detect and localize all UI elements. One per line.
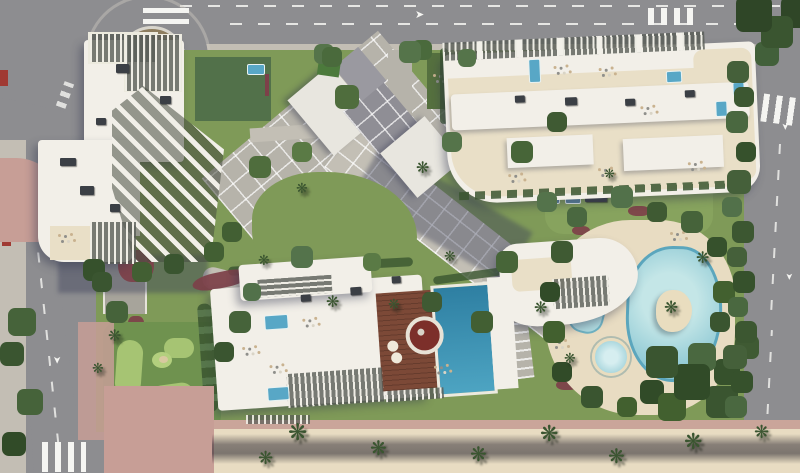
palm-tree: ❋ — [388, 298, 400, 312]
rooftop-unit — [110, 204, 120, 212]
rooftop-unit — [350, 287, 362, 296]
palm-tree: ❋ — [92, 362, 104, 376]
crosswalk — [760, 93, 800, 126]
terrace-furniture — [599, 68, 602, 71]
terrace-furniture — [58, 234, 61, 237]
palm-tree: ❋ — [258, 450, 273, 468]
flower-strip — [265, 74, 269, 96]
palm-tree: ❋ — [326, 294, 339, 310]
rooftop-unit — [60, 158, 76, 166]
palm-tree: ❋ — [534, 300, 547, 316]
sand-trap — [159, 356, 168, 363]
pink-sidewalk — [104, 386, 214, 473]
green-roof-box — [317, 57, 341, 78]
building-b-roof-slab — [623, 135, 724, 171]
plunge-pool — [267, 386, 290, 402]
building-b — [443, 41, 761, 204]
palm-tree: ❋ — [540, 424, 558, 446]
plunge-pool — [732, 82, 745, 97]
rooftop-unit — [565, 97, 577, 106]
palm-tree: ❋ — [664, 300, 678, 317]
sun-loungers — [670, 232, 673, 235]
rooftop-unit — [80, 186, 94, 195]
palm-tree: ❋ — [108, 328, 121, 344]
rooftop-unit — [160, 96, 171, 104]
wing-pergola — [552, 275, 610, 309]
crosswalk — [648, 8, 700, 25]
palm-tree: ❋ — [684, 432, 702, 454]
palm-tree: ❋ — [288, 422, 307, 445]
palm-tree: ❋ — [604, 168, 615, 181]
plunge-pool — [264, 314, 289, 331]
palm-tree: ❋ — [608, 446, 625, 466]
building-a-pergola — [124, 34, 182, 92]
palm-tree: ❋ — [470, 444, 487, 464]
rooftop-unit — [391, 276, 400, 284]
palm-tree: ❋ — [444, 250, 456, 264]
lane-arrow-icon: ➤ — [415, 9, 424, 20]
picnic-table — [433, 74, 436, 77]
rooftop-unit — [116, 64, 129, 73]
terrace-furniture — [553, 66, 556, 69]
crosswalk — [42, 442, 86, 472]
kiosk-roof — [0, 70, 8, 86]
building-c-fins — [286, 367, 384, 408]
plunge-pool — [666, 70, 683, 83]
rooftop-unit — [685, 90, 695, 97]
rooftop-unit — [301, 294, 311, 302]
terrace-furniture — [508, 174, 511, 177]
terrace-furniture — [640, 106, 643, 109]
lane-line — [180, 5, 800, 7]
palm-tree: ❋ — [696, 250, 709, 266]
yield-marks — [56, 81, 74, 109]
plunge-pool — [715, 101, 728, 118]
flower-bed — [628, 206, 650, 216]
palm-tree: ❋ — [754, 424, 769, 442]
palm-tree: ❋ — [416, 160, 429, 176]
rooftop-unit — [625, 99, 635, 106]
green-roof-pool — [247, 64, 265, 75]
building-a-terrace — [50, 226, 90, 260]
palm-tree: ❋ — [258, 254, 270, 268]
plunge-pool — [528, 59, 541, 84]
palm-tree: ❋ — [296, 182, 308, 196]
building-a-colonnade — [90, 222, 136, 264]
crosswalk — [143, 6, 189, 24]
rooftop-unit — [96, 118, 106, 125]
aerial-render: ➤ ➤ ➤ ➤ — [0, 0, 800, 473]
palm-tree: ❋ — [370, 438, 387, 458]
lane-arrow-icon: ➤ — [51, 356, 61, 364]
building-b-roof-slab — [507, 134, 594, 168]
tree-cluster — [0, 0, 4, 4]
lane-line — [230, 23, 800, 25]
rooftop-unit — [515, 95, 525, 102]
palm-tree: ❋ — [564, 352, 576, 366]
lane-arrow-icon: ➤ — [783, 273, 792, 281]
